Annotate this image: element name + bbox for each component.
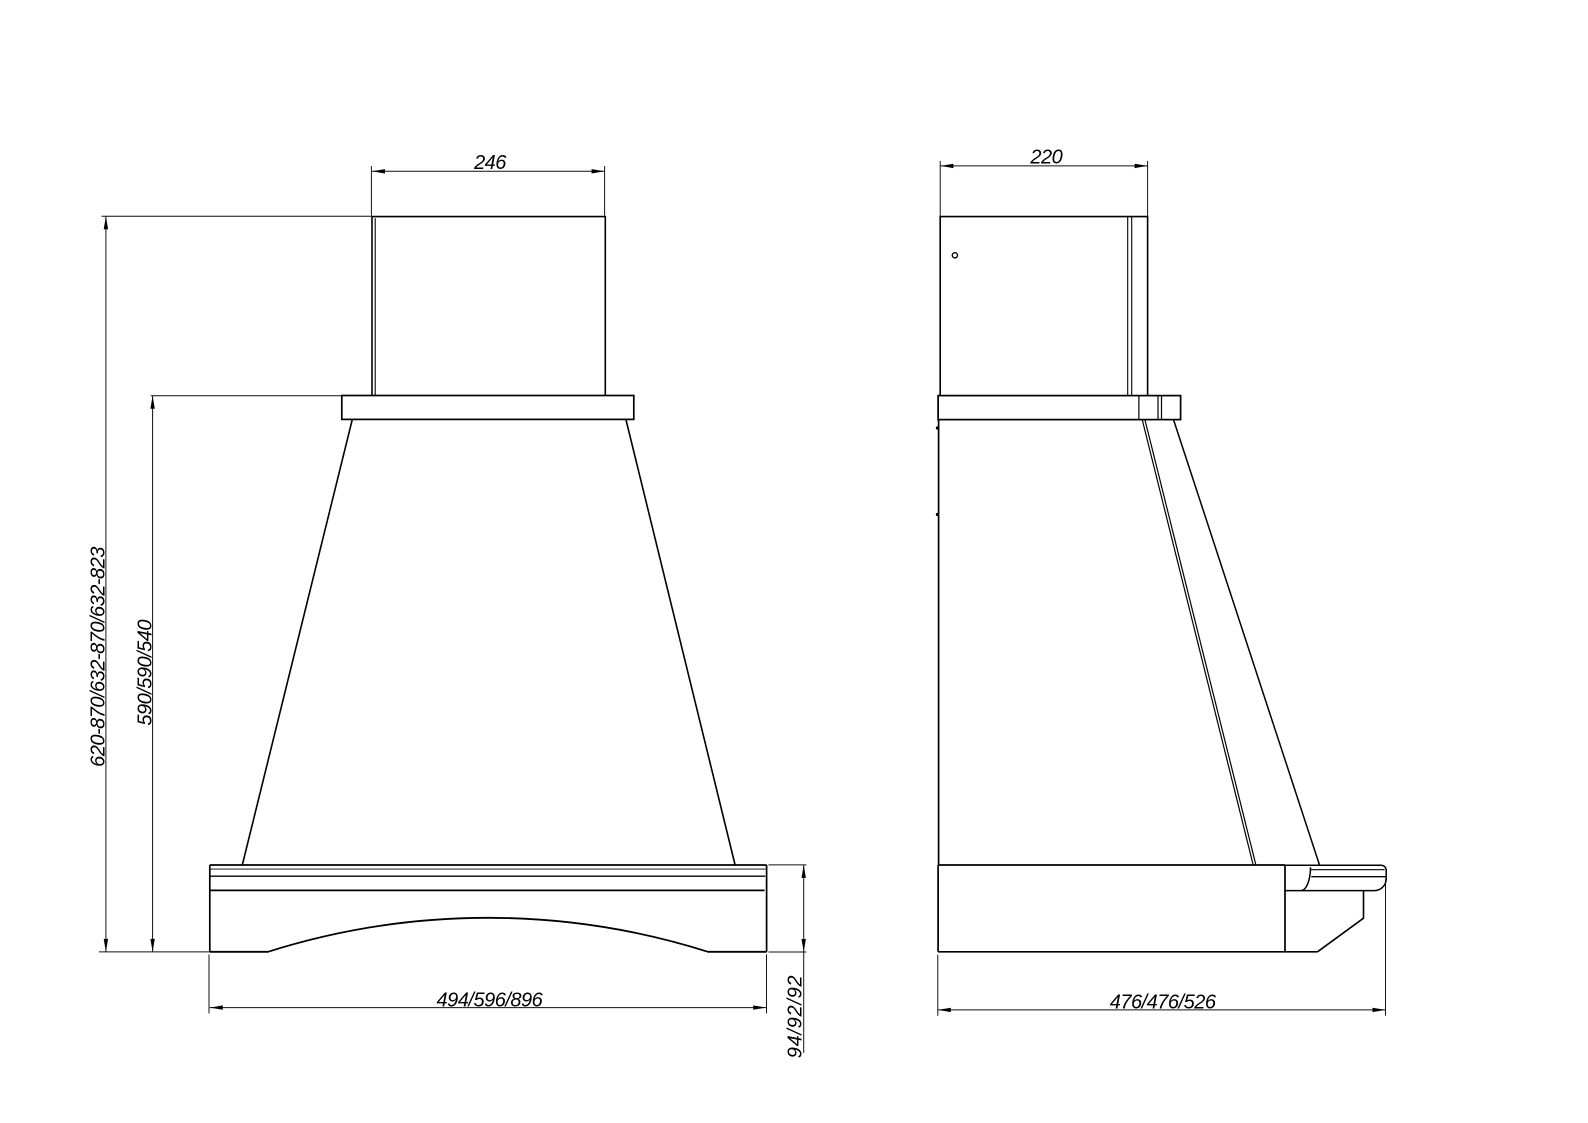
svg-text:494/596/896: 494/596/896 <box>437 989 544 1011</box>
svg-text:94/92/92: 94/92/92 <box>785 975 807 1058</box>
svg-text:620-870/632-870/632-823: 620-870/632-870/632-823 <box>87 547 109 767</box>
svg-text:590/590/540: 590/590/540 <box>134 620 156 726</box>
svg-text:220: 220 <box>1029 146 1062 168</box>
svg-text:476/476/526: 476/476/526 <box>1110 992 1217 1014</box>
svg-text:246: 246 <box>473 152 507 174</box>
